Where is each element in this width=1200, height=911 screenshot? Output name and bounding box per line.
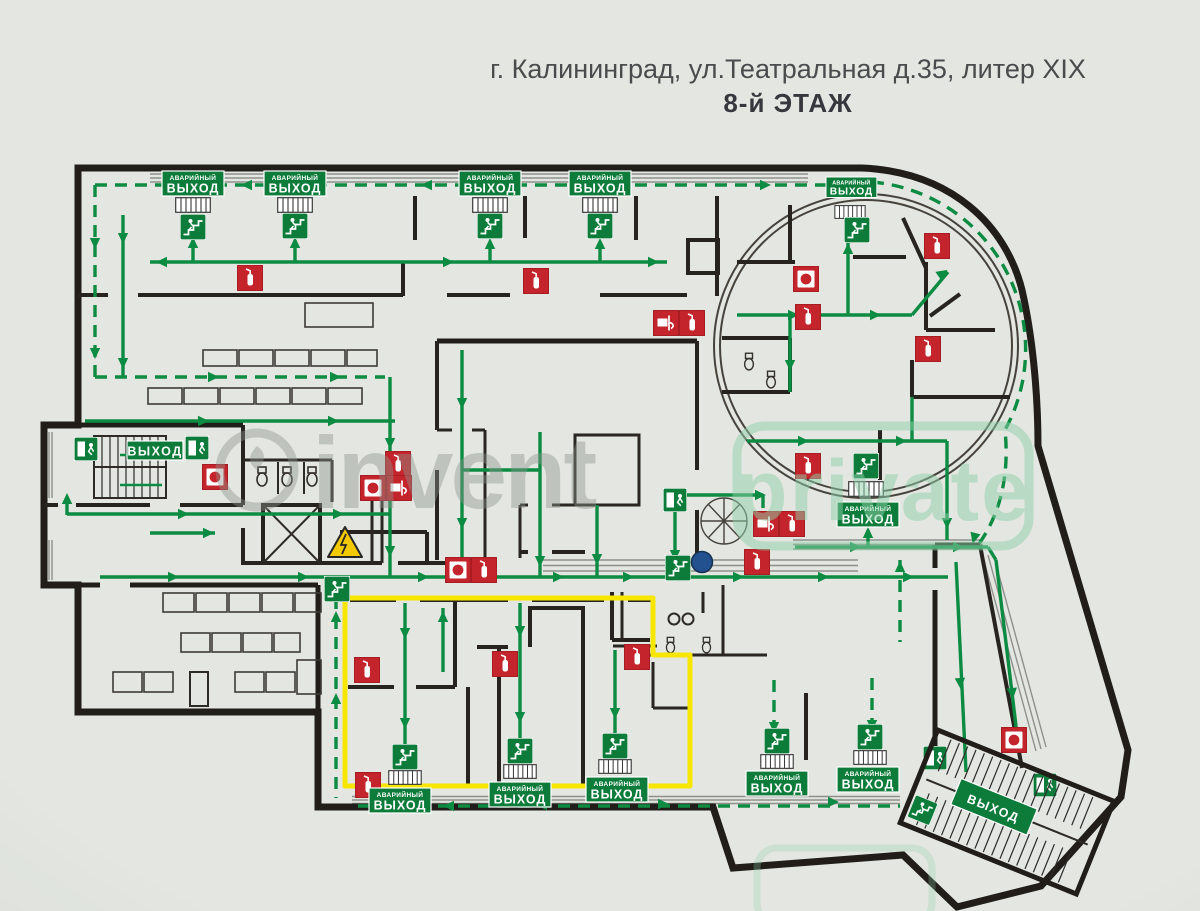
emergency-exit-sign: АВАРИЙНЫЙВЫХОД xyxy=(569,171,631,196)
svg-text:ВЫХОД: ВЫХОД xyxy=(751,782,804,796)
svg-text:ВЫХОД: ВЫХОД xyxy=(374,799,427,813)
fire-alarm-button-icon xyxy=(793,266,819,292)
fire-alarm-button-icon xyxy=(445,557,471,583)
emergency-exit-sign: АВАРИЙНЫЙВЫХОД xyxy=(162,171,224,196)
svg-text:invent: invent xyxy=(312,416,596,530)
exit-door-icon xyxy=(74,437,98,461)
stairs-down-icon xyxy=(392,744,418,770)
svg-text:ВЫХОД: ВЫХОД xyxy=(494,793,547,807)
emergency-exit-sign: АВАРИЙНЫЙВЫХОД xyxy=(586,777,648,802)
emergency-exit-sign: АВАРИЙНЫЙВЫХОД xyxy=(489,782,551,807)
stairs-down-icon xyxy=(507,738,533,764)
emergency-exit-sign: АВАРИЙНЫЙВЫХОД xyxy=(369,788,431,813)
svg-text:ВЫХОД: ВЫХОД xyxy=(167,182,220,196)
exit-door-icon xyxy=(663,488,687,512)
fire-extinguisher-icon xyxy=(237,265,263,291)
fire-extinguisher-icon xyxy=(795,304,821,330)
fire-extinguisher-icon xyxy=(679,310,705,336)
exit-door-icon xyxy=(185,436,209,460)
svg-text:ВЫХОД: ВЫХОД xyxy=(591,788,644,802)
stair-treads-icon xyxy=(854,751,886,765)
svg-text:АВАРИЙНЫЙ: АВАРИЙНЫЙ xyxy=(832,178,870,186)
plan-address-title: г. Калининград, ул.Театральная д.35, лит… xyxy=(490,54,1086,84)
fire-extinguisher-icon xyxy=(471,557,497,583)
fire-extinguisher-icon xyxy=(492,651,518,677)
fire-hose-icon xyxy=(653,310,679,336)
stair-treads-icon xyxy=(761,755,793,769)
stair-treads-icon xyxy=(599,760,631,774)
svg-text:ВЫХОД: ВЫХОД xyxy=(830,187,873,198)
fire-extinguisher-icon xyxy=(924,233,950,259)
stairs-down-icon xyxy=(587,213,613,239)
stairs-down-icon xyxy=(477,213,503,239)
fire-extinguisher-icon xyxy=(354,657,380,683)
fire-extinguisher-icon xyxy=(624,644,650,670)
fire-extinguisher-icon xyxy=(744,549,770,575)
stair-treads-icon xyxy=(176,198,211,213)
fire-alarm-button-icon xyxy=(1001,727,1027,753)
stair-treads-icon xyxy=(583,198,618,213)
stairs-down-icon xyxy=(324,576,350,602)
svg-text:private: private xyxy=(735,443,1031,539)
exit-sign: ВЫХОД xyxy=(127,441,183,460)
stairs-down-icon xyxy=(844,217,870,243)
svg-text:ВЫХОД: ВЫХОД xyxy=(269,182,322,196)
evacuation-plan-photo: АВАРИЙНЫЙВЫХОД АВАРИЙНЫЙВЫХОД АВАРИЙНЫЙВ… xyxy=(0,0,1200,911)
emergency-exit-sign: АВАРИЙНЫЙВЫХОД xyxy=(746,771,808,796)
stairs-down-icon xyxy=(665,555,691,581)
stair-treads-icon xyxy=(278,198,313,213)
stairs-down-icon xyxy=(180,214,206,240)
fire-extinguisher-icon xyxy=(915,336,941,362)
svg-text:ВЫХОД: ВЫХОД xyxy=(574,182,627,196)
stair-treads-icon xyxy=(504,765,536,779)
stairs-down-icon xyxy=(857,724,883,750)
stair-treads-icon xyxy=(835,206,865,219)
you-are-here-marker xyxy=(692,552,713,573)
emergency-exit-sign: АВАРИЙНЫЙВЫХОД xyxy=(264,171,326,196)
svg-text:ВЫХОД: ВЫХОД xyxy=(127,445,182,459)
emergency-exit-sign: АВАРИЙНЫЙВЫХОД xyxy=(826,177,877,198)
stairs-down-icon xyxy=(282,213,308,239)
stair-treads-icon xyxy=(389,771,421,785)
stairs-down-icon xyxy=(764,728,790,754)
emergency-exit-sign: АВАРИЙНЫЙВЫХОД xyxy=(459,171,521,196)
stairs-down-icon xyxy=(602,733,628,759)
fire-extinguisher-icon xyxy=(523,268,549,294)
svg-text:ВЫХОД: ВЫХОД xyxy=(464,182,517,196)
stair-treads-icon xyxy=(473,198,508,213)
emergency-exit-sign: АВАРИЙНЫЙВЫХОД xyxy=(837,767,899,792)
plan-floor-title: 8-й ЭТАЖ xyxy=(723,88,852,118)
svg-text:ВЫХОД: ВЫХОД xyxy=(842,778,895,792)
